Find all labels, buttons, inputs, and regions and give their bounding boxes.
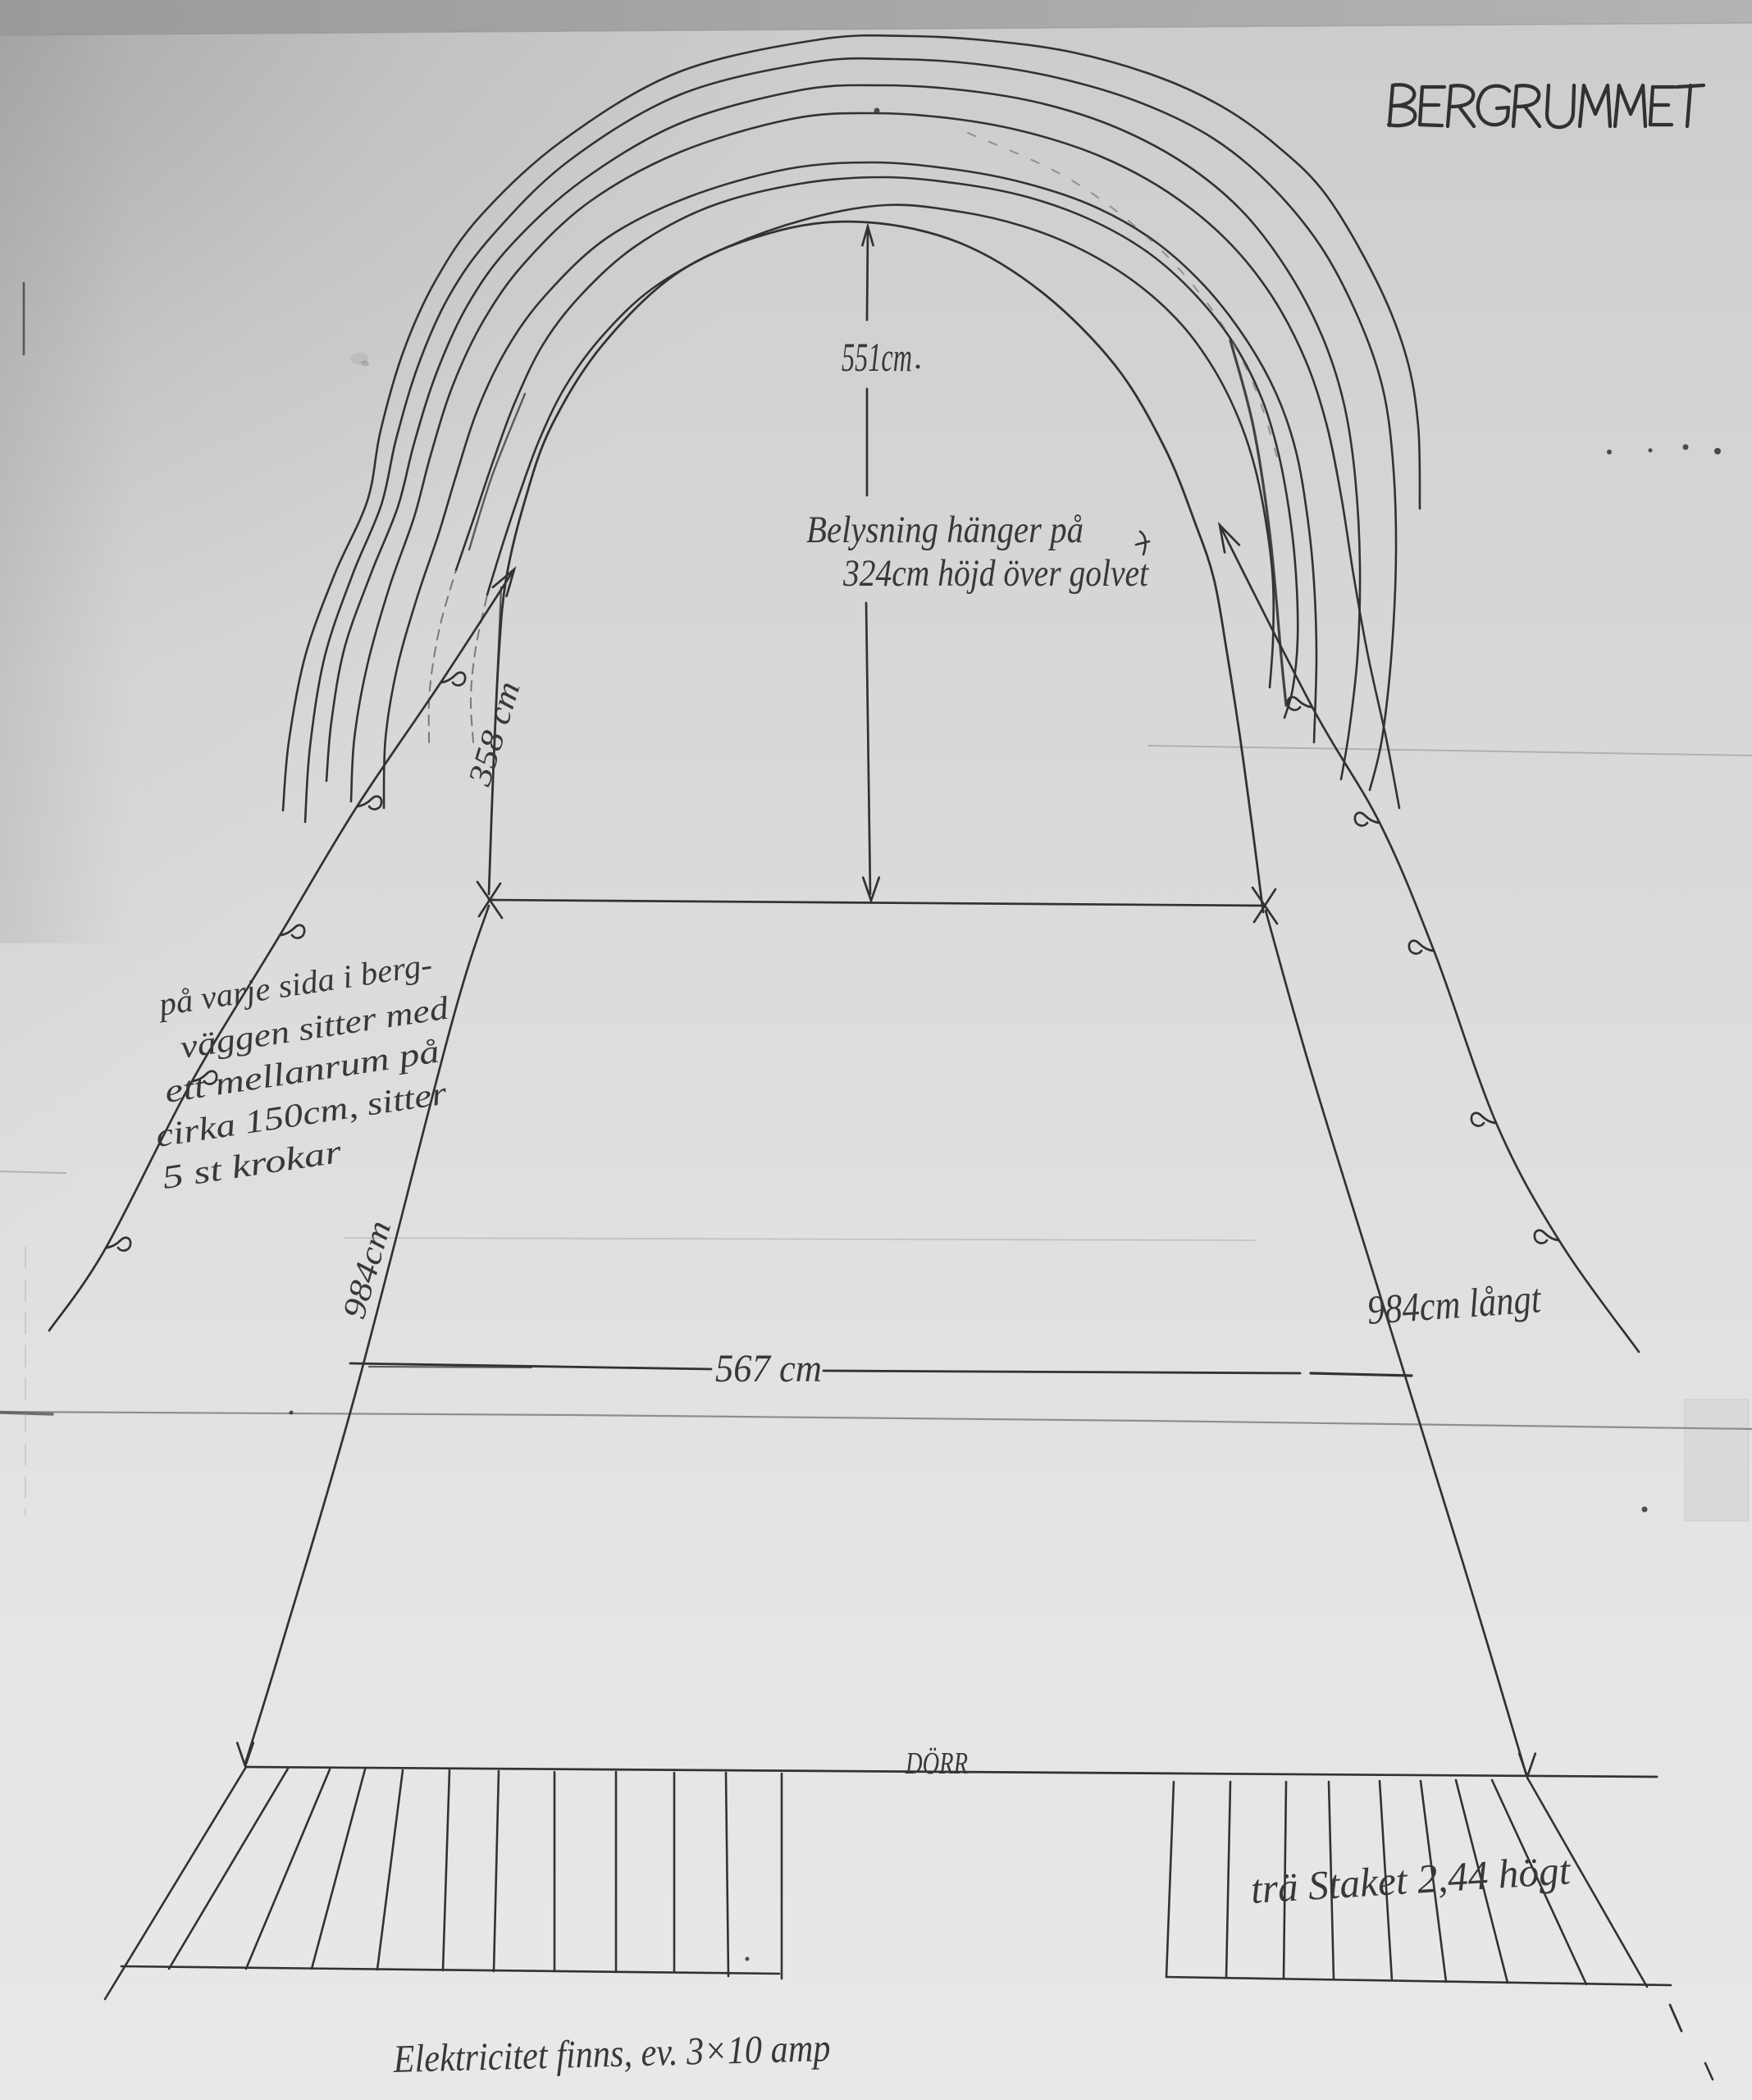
svg-text:Belysning hänger på: Belysning hänger på — [806, 509, 1084, 551]
svg-text:DÖRR: DÖRR — [905, 1746, 968, 1781]
svg-text:324cm höjd över golvet: 324cm höjd över golvet — [842, 552, 1149, 595]
svg-text:567 cm: 567 cm — [715, 1347, 822, 1390]
svg-text:551cm: 551cm — [842, 334, 912, 380]
